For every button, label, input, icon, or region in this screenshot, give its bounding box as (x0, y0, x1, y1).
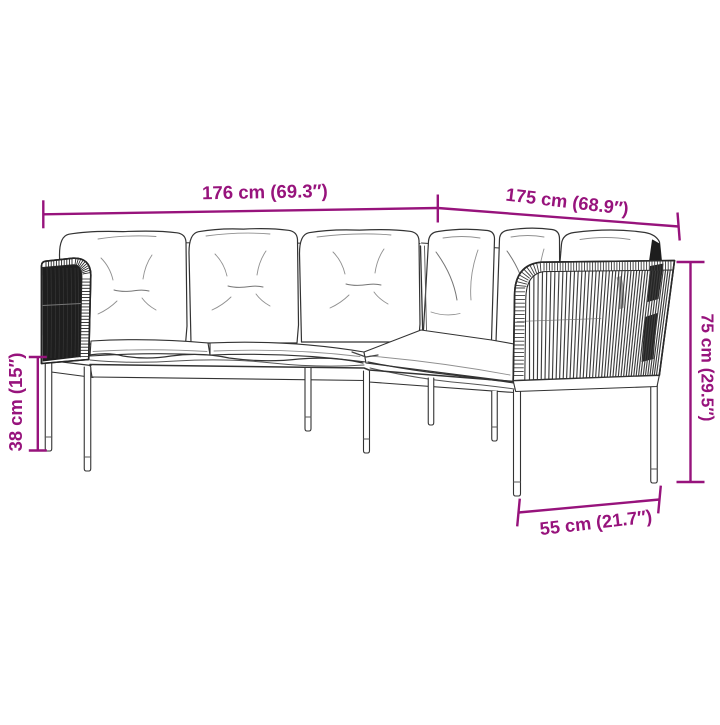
svg-text:38 cm (15″): 38 cm (15″) (5, 353, 26, 452)
svg-text:75 cm (29.5″): 75 cm (29.5″) (698, 314, 718, 422)
svg-text:176 cm (69.3″): 176 cm (69.3″) (202, 180, 328, 203)
